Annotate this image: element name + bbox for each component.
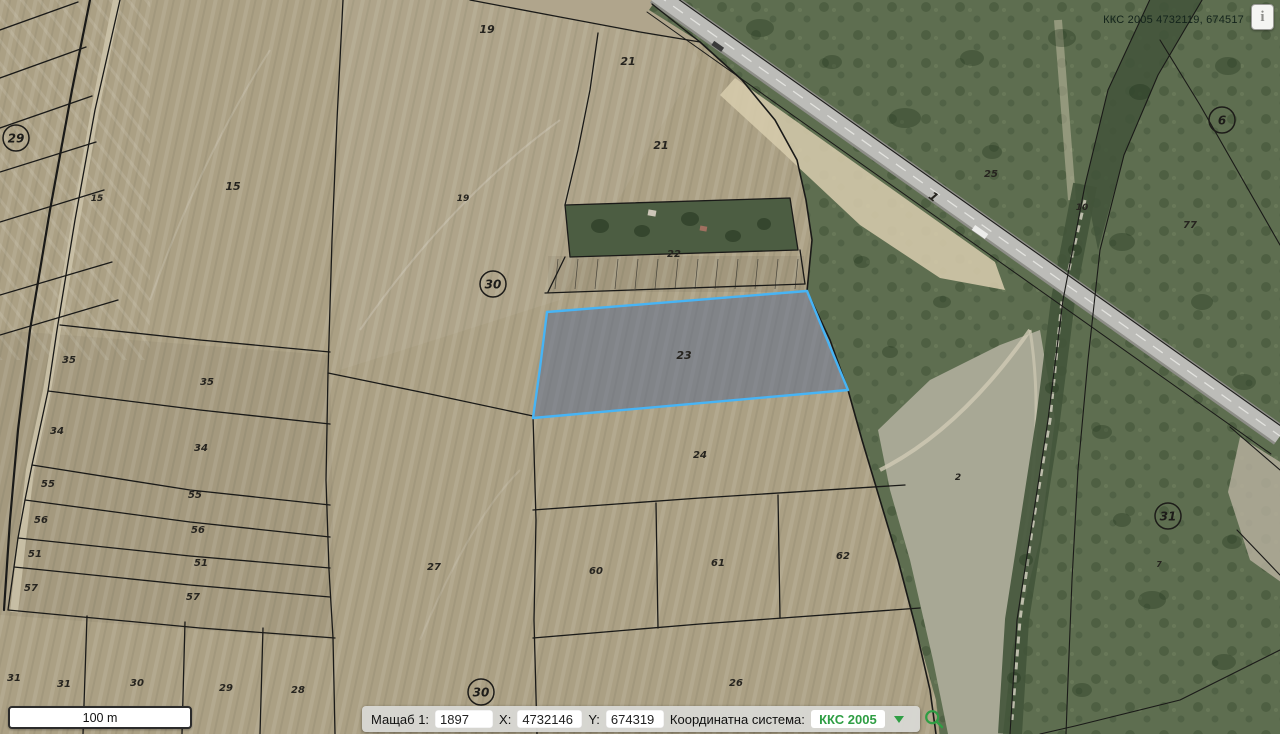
parcel-label: 31	[7, 673, 21, 684]
parcel-label: 22	[667, 249, 681, 260]
parcel-label: 56	[191, 525, 205, 536]
parcel-label: 21	[620, 55, 635, 68]
coords-overlay: ККС 2005 4732119, 674517 i	[1103, 4, 1274, 30]
search-button[interactable]	[924, 709, 944, 729]
farmstead-parcel	[565, 198, 798, 257]
parcel-label: 60	[589, 566, 603, 577]
parcel-label: 35	[200, 377, 214, 388]
scale-label: Мащаб 1:	[371, 712, 429, 727]
parcel-label: 56	[34, 515, 48, 526]
scale-input[interactable]	[435, 710, 493, 728]
parcel-label: 57	[186, 592, 200, 603]
scale-bar-label: 100 m	[83, 711, 118, 725]
svg-text:31: 31	[1160, 510, 1177, 524]
parcel-label: 30	[130, 678, 144, 689]
parcel-label: 28	[291, 685, 305, 696]
bottom-toolbar: Мащаб 1: X: Y: Координатна система: ККС …	[362, 706, 920, 732]
parcel-label: 26	[729, 678, 743, 689]
search-icon	[924, 709, 944, 729]
parcel-label: 10	[1076, 203, 1089, 213]
parcel-label: 15	[225, 180, 241, 193]
crs-coords-readout: ККС 2005 4732119, 674517	[1103, 9, 1244, 26]
chevron-down-icon[interactable]	[894, 716, 904, 723]
parcel-label: 24	[693, 450, 707, 461]
parcel-label: 57	[24, 583, 38, 594]
parcel-label: 51	[28, 549, 42, 560]
crs-label: Координатна система:	[670, 712, 805, 727]
svg-text:29: 29	[8, 132, 25, 146]
parcel-label: 25	[984, 169, 998, 180]
parcel-label: 21	[653, 139, 668, 152]
crs-select[interactable]: ККС 2005	[811, 710, 885, 728]
x-label: X:	[499, 712, 511, 727]
parcel-label: 55	[41, 479, 55, 490]
parcel-label: 61	[711, 558, 725, 569]
map-application: 1515191921212223242627606162353534345555…	[0, 0, 1280, 734]
parcel-label: 19	[479, 23, 495, 36]
parcel-label: 23	[676, 349, 692, 362]
parcel-label: 77	[1183, 220, 1197, 231]
parcel-label: 19	[457, 194, 470, 204]
y-coordinate-input[interactable]	[606, 710, 664, 728]
map-canvas[interactable]: 1515191921212223242627606162353534345555…	[0, 0, 1280, 734]
parcel-label: 27	[427, 562, 441, 573]
crs-selected-value: ККС 2005	[819, 712, 877, 727]
x-coordinate-input[interactable]	[517, 710, 582, 728]
svg-text:30: 30	[473, 686, 490, 700]
parcel-label: 31	[57, 679, 71, 690]
parcel-label: 34	[50, 426, 64, 437]
parcel-label: 34	[194, 443, 208, 454]
scale-bar: 100 m	[8, 706, 192, 729]
parcel-label: 62	[836, 551, 850, 562]
parcel-label: 29	[219, 683, 233, 694]
svg-text:30: 30	[485, 278, 502, 292]
parcel-label: 7	[1156, 560, 1162, 569]
y-label: Y:	[588, 712, 600, 727]
info-button[interactable]: i	[1251, 4, 1274, 30]
info-icon: i	[1260, 10, 1264, 25]
parcel-label: 15	[91, 194, 104, 204]
parcel-label: 55	[188, 490, 202, 501]
svg-text:6: 6	[1218, 114, 1226, 128]
parcel-label: 35	[62, 355, 76, 366]
parcel-label: 51	[194, 558, 208, 569]
parcel-label: 2	[955, 473, 961, 483]
